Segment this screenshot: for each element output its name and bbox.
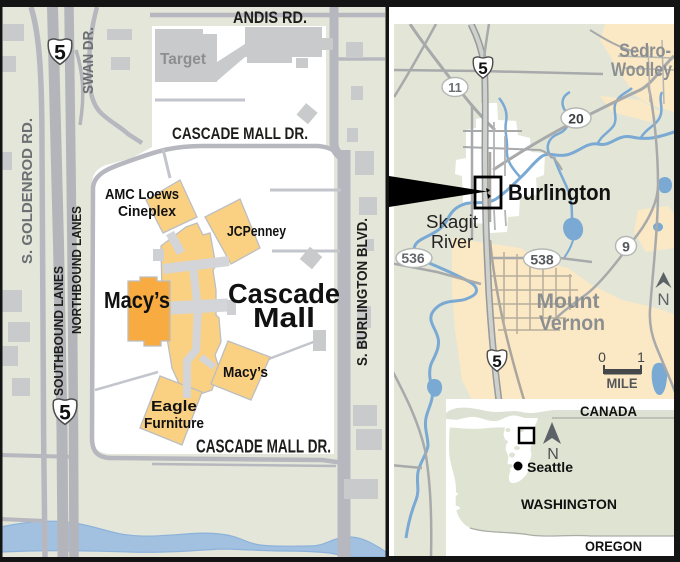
svg-text:Furniture: Furniture <box>144 415 204 432</box>
svg-text:Sedro-: Sedro- <box>619 41 671 62</box>
svg-text:536: 536 <box>401 250 425 266</box>
svg-text:MILE: MILE <box>607 375 638 391</box>
svg-text:CASCADE MALL DR.: CASCADE MALL DR. <box>196 436 331 457</box>
svg-text:Cineplex: Cineplex <box>118 203 177 220</box>
svg-text:5: 5 <box>54 42 66 65</box>
svg-text:SWAN DR.: SWAN DR. <box>80 27 97 94</box>
svg-text:5: 5 <box>59 402 71 425</box>
svg-text:Mall: Mall <box>253 302 315 333</box>
svg-text:Macy’s: Macy’s <box>223 364 268 381</box>
svg-text:20: 20 <box>568 111 584 127</box>
svg-text:SOUTHBOUND LANES: SOUTHBOUND LANES <box>52 266 66 396</box>
svg-text:Eagle: Eagle <box>151 398 197 415</box>
svg-text:S. BURLINGTON BLVD.: S. BURLINGTON BLVD. <box>354 218 371 366</box>
svg-text:AMC Loews: AMC Loews <box>105 186 179 203</box>
svg-text:Seattle: Seattle <box>527 459 573 475</box>
svg-text:CASCADE MALL DR.: CASCADE MALL DR. <box>172 124 308 143</box>
svg-text:River: River <box>431 232 473 252</box>
svg-text:NORTHBOUND LANES: NORTHBOUND LANES <box>70 206 84 334</box>
svg-text:0: 0 <box>598 349 606 365</box>
svg-text:Macy’s: Macy’s <box>104 287 170 313</box>
svg-text:S. GOLDENROD RD.: S. GOLDENROD RD. <box>19 118 36 264</box>
svg-text:5: 5 <box>478 59 487 78</box>
svg-text:Vernon: Vernon <box>539 312 605 335</box>
svg-text:9: 9 <box>622 239 630 255</box>
svg-text:Woolley: Woolley <box>611 60 672 81</box>
svg-text:Mount: Mount <box>537 290 600 313</box>
svg-text:CANADA: CANADA <box>580 403 637 419</box>
svg-text:ANDIS RD.: ANDIS RD. <box>233 8 307 27</box>
svg-text:11: 11 <box>448 80 462 95</box>
svg-text:5: 5 <box>492 352 501 371</box>
svg-text:WASHINGTON: WASHINGTON <box>521 496 617 512</box>
svg-text:Target: Target <box>160 51 207 68</box>
svg-text:OREGON: OREGON <box>585 538 642 554</box>
svg-text:1: 1 <box>637 349 645 365</box>
svg-text:N: N <box>657 290 669 309</box>
svg-text:Burlington: Burlington <box>508 180 611 205</box>
svg-text:JCPenney: JCPenney <box>227 223 287 240</box>
svg-text:Skagit: Skagit <box>426 212 478 232</box>
svg-text:538: 538 <box>530 252 554 268</box>
